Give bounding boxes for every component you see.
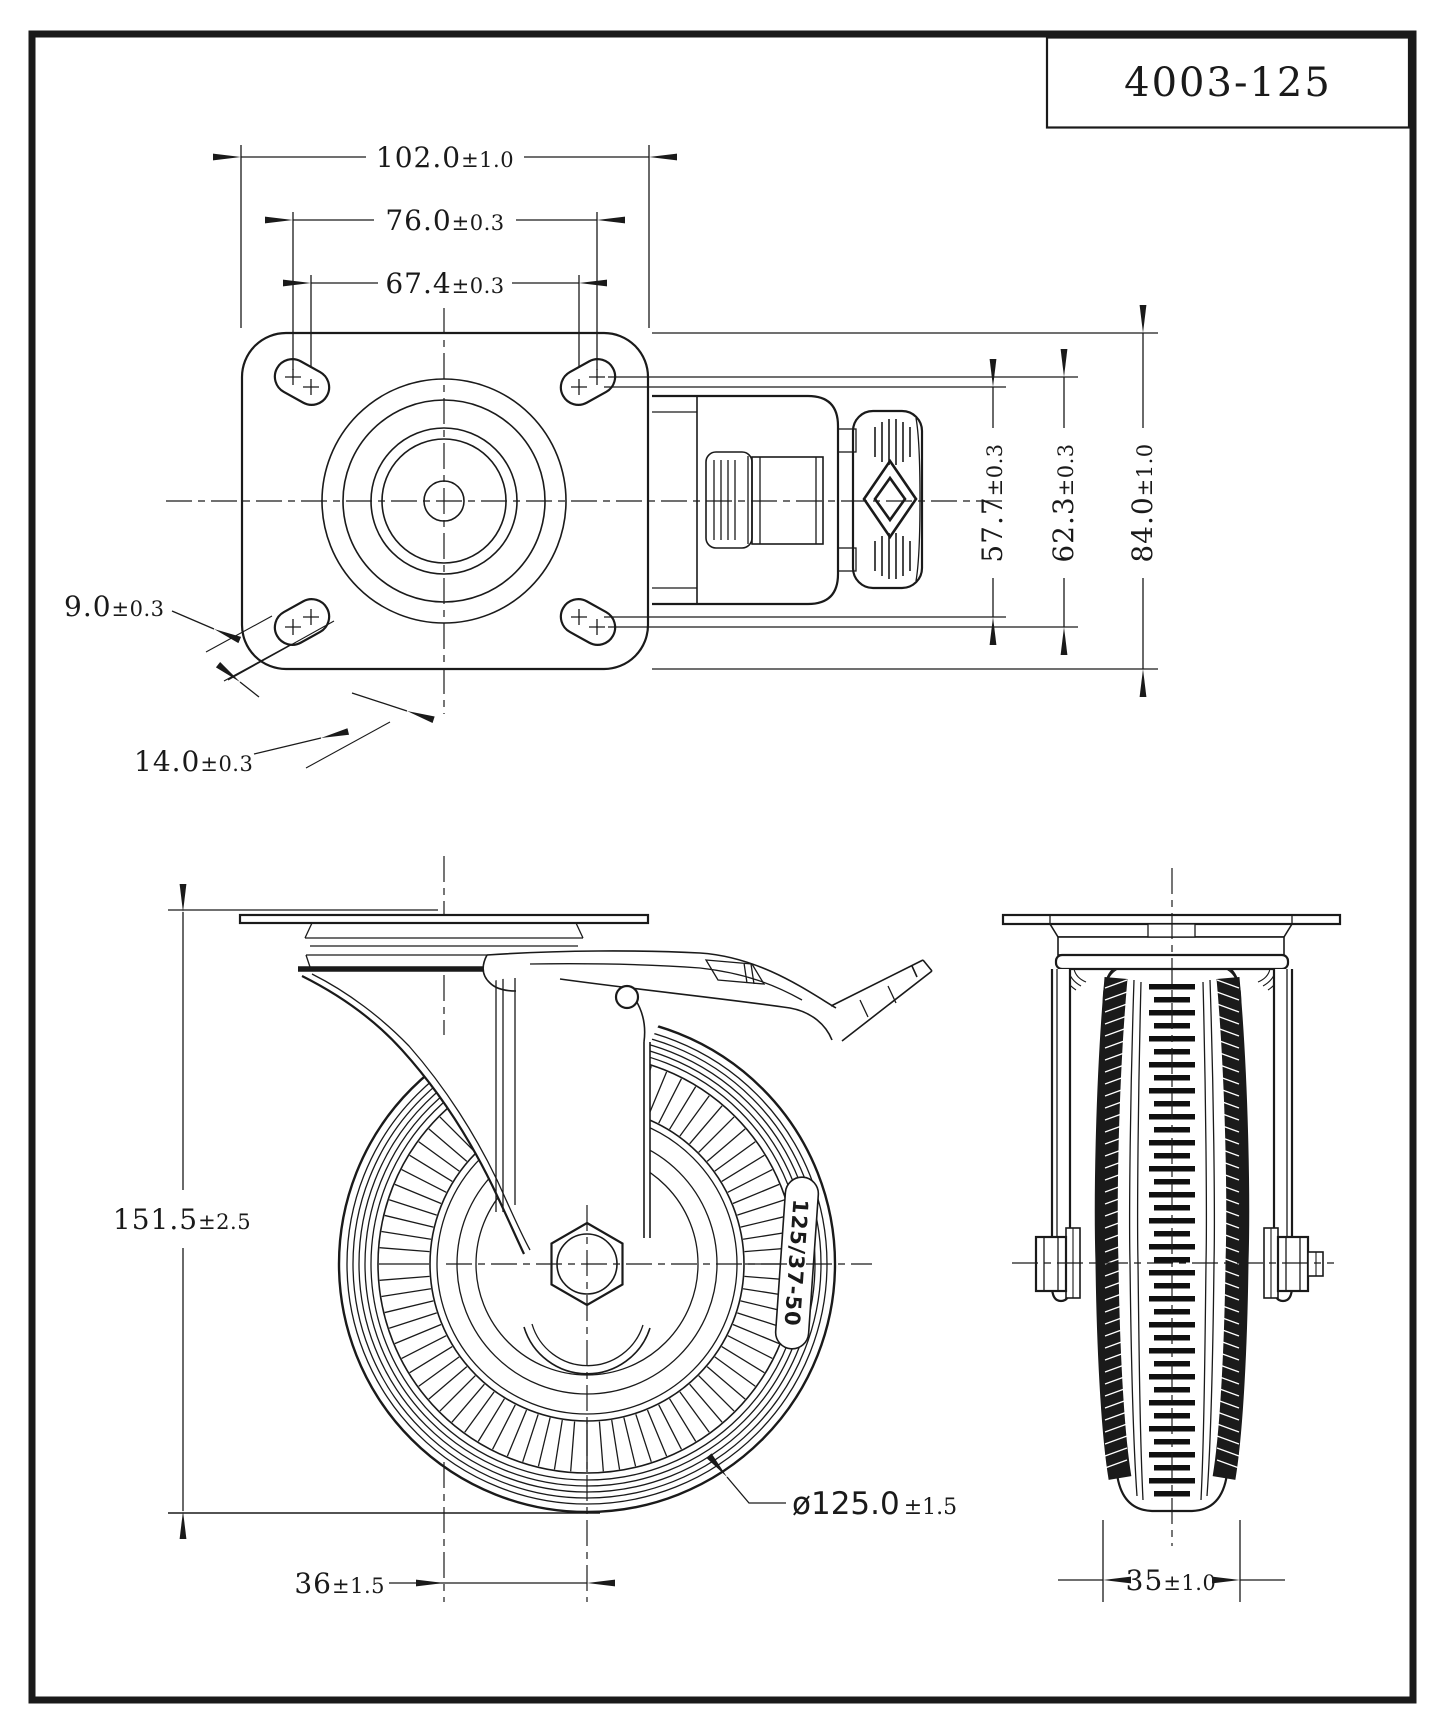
brake-pivot-pin: [616, 986, 638, 1008]
dim-wheel-diameter: ø125.0±1.5: [727, 1477, 957, 1522]
brake-pedal: [853, 411, 922, 588]
dim-plate-width: 102.0±1.0: [241, 141, 649, 174]
axle-nut-right: [1278, 1237, 1308, 1291]
svg-text:102.0±1.0: 102.0±1.0: [376, 141, 514, 174]
top-view: 102.0±1.0 76.0±0.3 67.4±0.3 57.7±0.3 62.…: [64, 141, 1159, 778]
title-block: 4003-125: [1047, 38, 1409, 128]
dim-plate-depth: 84.0±1.0: [1126, 333, 1159, 669]
pedal-ribs-top: [875, 419, 910, 465]
dim-hole-spacing-vert-inner: 57.7±0.3: [976, 387, 1009, 617]
extension-lines-top: [241, 145, 1158, 669]
svg-text:67.4±0.3: 67.4±0.3: [385, 267, 504, 300]
dim-hole-spacing-inner: 67.4±0.3: [311, 267, 579, 300]
svg-text:35±1.0: 35±1.0: [1126, 1564, 1217, 1597]
side-view: 35±1.0: [1003, 868, 1340, 1602]
pedal-diamond-inner: [875, 478, 905, 520]
slot-center-crosses: [285, 369, 605, 635]
svg-text:151.5±2.5: 151.5±2.5: [113, 1203, 251, 1236]
pedal-diamond-outer: [864, 461, 916, 537]
svg-text:36±1.5: 36±1.5: [294, 1567, 385, 1600]
dim-slot-width: 9.0±0.3: [64, 590, 390, 768]
dim-hole-spacing-vert-outer: 62.3±0.3: [1047, 377, 1080, 627]
front-view: 125/37-50: [113, 856, 957, 1602]
svg-text:76.0±0.3: 76.0±0.3: [385, 204, 504, 237]
svg-text:9.0±0.3: 9.0±0.3: [64, 590, 165, 623]
brake-housing: [652, 396, 856, 604]
svg-text:57.7±0.3: 57.7±0.3: [976, 443, 1009, 562]
dim-hole-spacing-outer: 76.0±0.3: [293, 204, 597, 237]
pedal-ribs-bottom: [875, 533, 910, 579]
drawing-sheet: 4003-125: [0, 0, 1445, 1734]
brake-lever: [831, 960, 932, 1041]
dim-swivel-offset: 36±1.5: [294, 1567, 587, 1600]
svg-text:84.0±1.0: 84.0±1.0: [1126, 443, 1159, 562]
swivel-fork: [295, 958, 808, 1374]
part-number: 4003-125: [1124, 60, 1332, 106]
svg-text:ø125.0±1.5: ø125.0±1.5: [792, 1486, 957, 1522]
svg-text:14.0±0.3: 14.0±0.3: [134, 745, 253, 778]
svg-text:62.3±0.3: 62.3±0.3: [1047, 443, 1080, 562]
axle-nut-left: [1036, 1237, 1066, 1291]
